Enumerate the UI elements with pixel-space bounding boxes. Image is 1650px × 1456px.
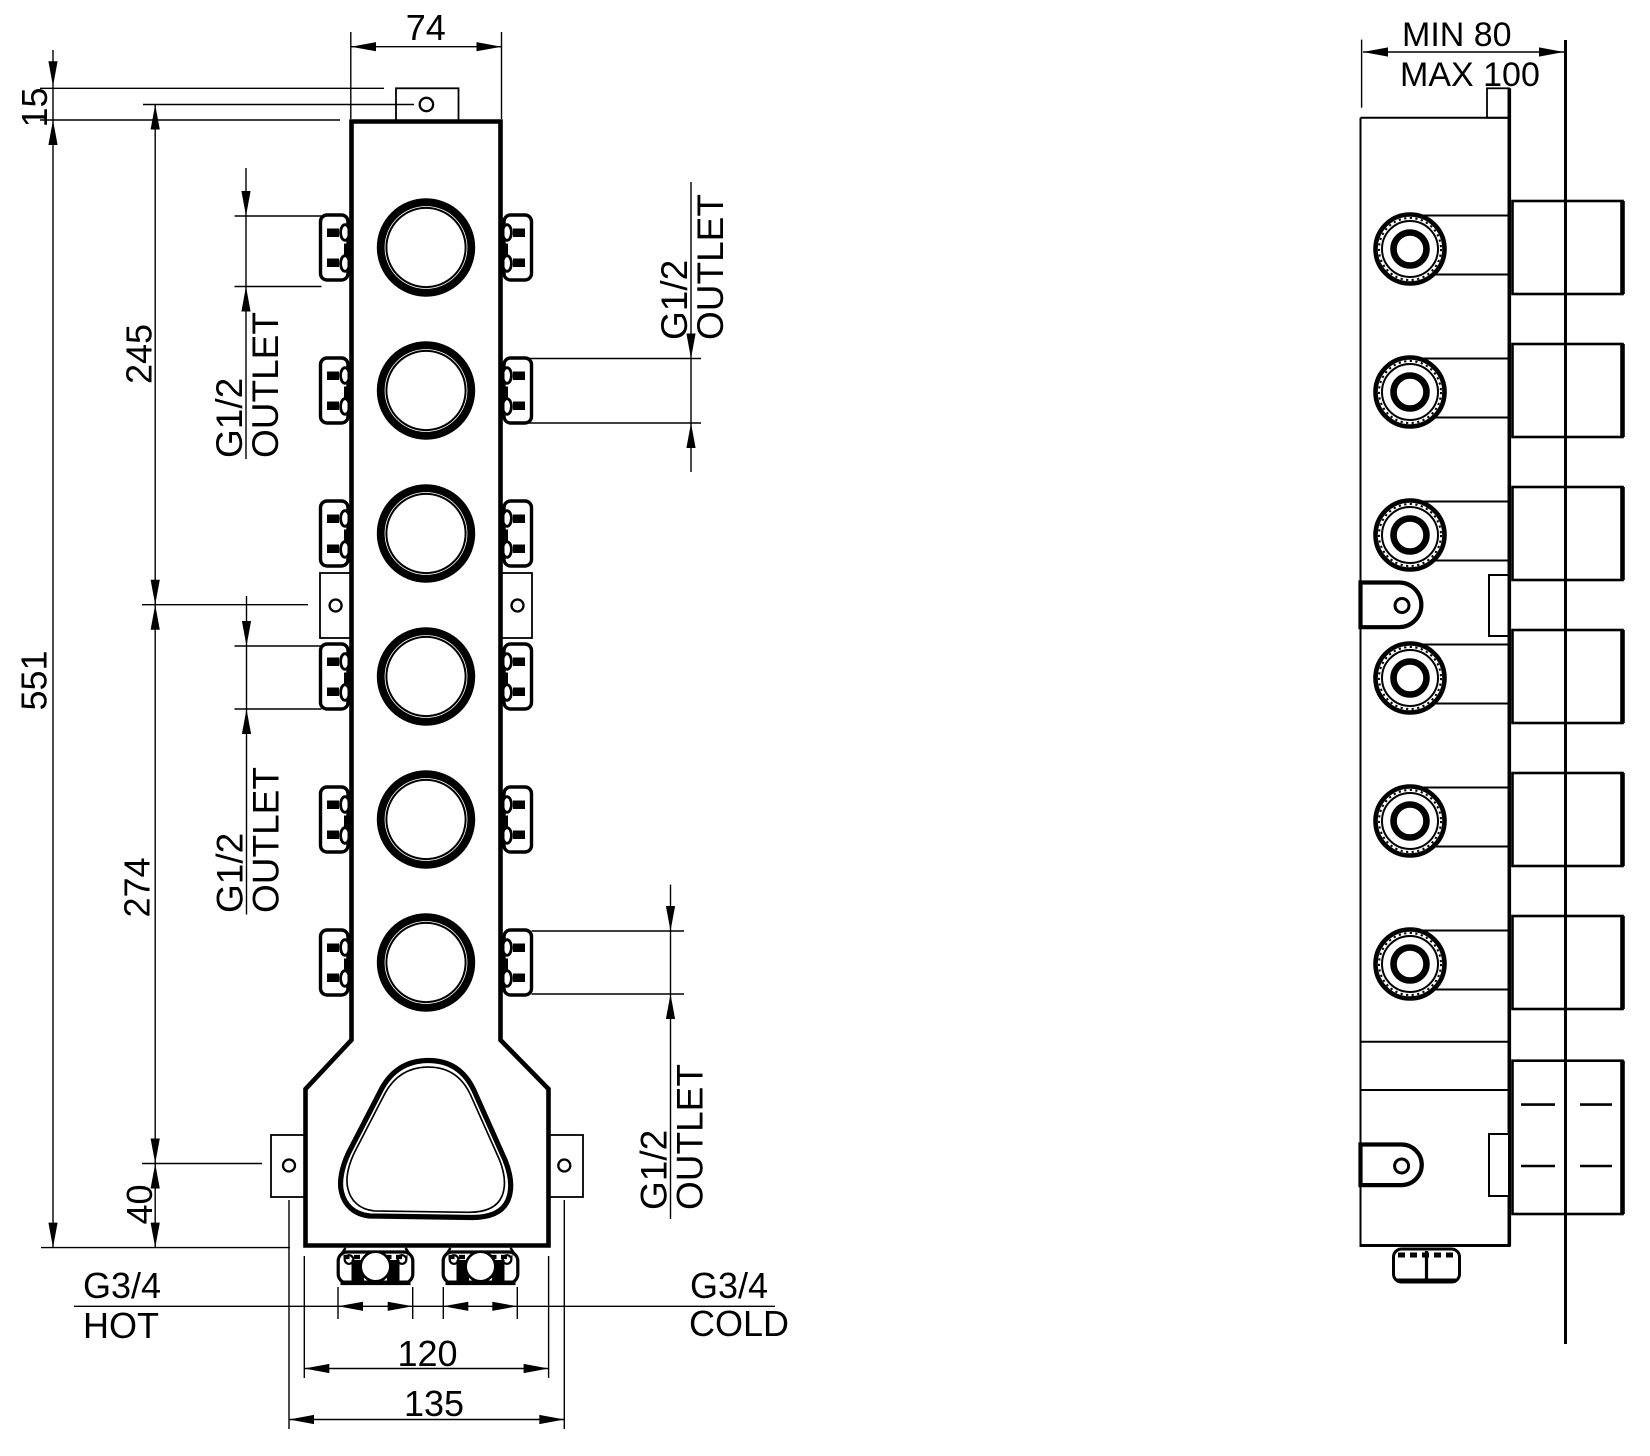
svg-text:G1/2: G1/2: [209, 378, 250, 458]
svg-text:551: 551: [14, 650, 55, 710]
svg-text:G3/4: G3/4: [83, 1265, 161, 1306]
svg-text:OUTLET: OUTLET: [246, 767, 287, 913]
svg-text:274: 274: [117, 857, 158, 917]
svg-text:G1/2: G1/2: [210, 833, 251, 913]
svg-text:MAX 100: MAX 100: [1400, 56, 1540, 94]
svg-text:OUTLET: OUTLET: [245, 312, 286, 458]
svg-text:135: 135: [404, 1383, 464, 1424]
svg-text:120: 120: [397, 1333, 457, 1374]
svg-text:G3/4: G3/4: [690, 1265, 768, 1306]
svg-text:74: 74: [406, 7, 446, 48]
svg-text:15: 15: [14, 87, 55, 127]
svg-text:G1/2: G1/2: [654, 260, 695, 340]
svg-text:COLD: COLD: [689, 1303, 789, 1344]
svg-text:245: 245: [118, 324, 159, 384]
svg-text:OUTLET: OUTLET: [670, 1064, 711, 1210]
svg-text:G1/2: G1/2: [634, 1130, 675, 1210]
svg-text:40: 40: [119, 1184, 160, 1224]
svg-text:HOT: HOT: [83, 1305, 159, 1346]
svg-text:MIN 80: MIN 80: [1402, 16, 1512, 54]
svg-text:OUTLET: OUTLET: [690, 194, 731, 340]
